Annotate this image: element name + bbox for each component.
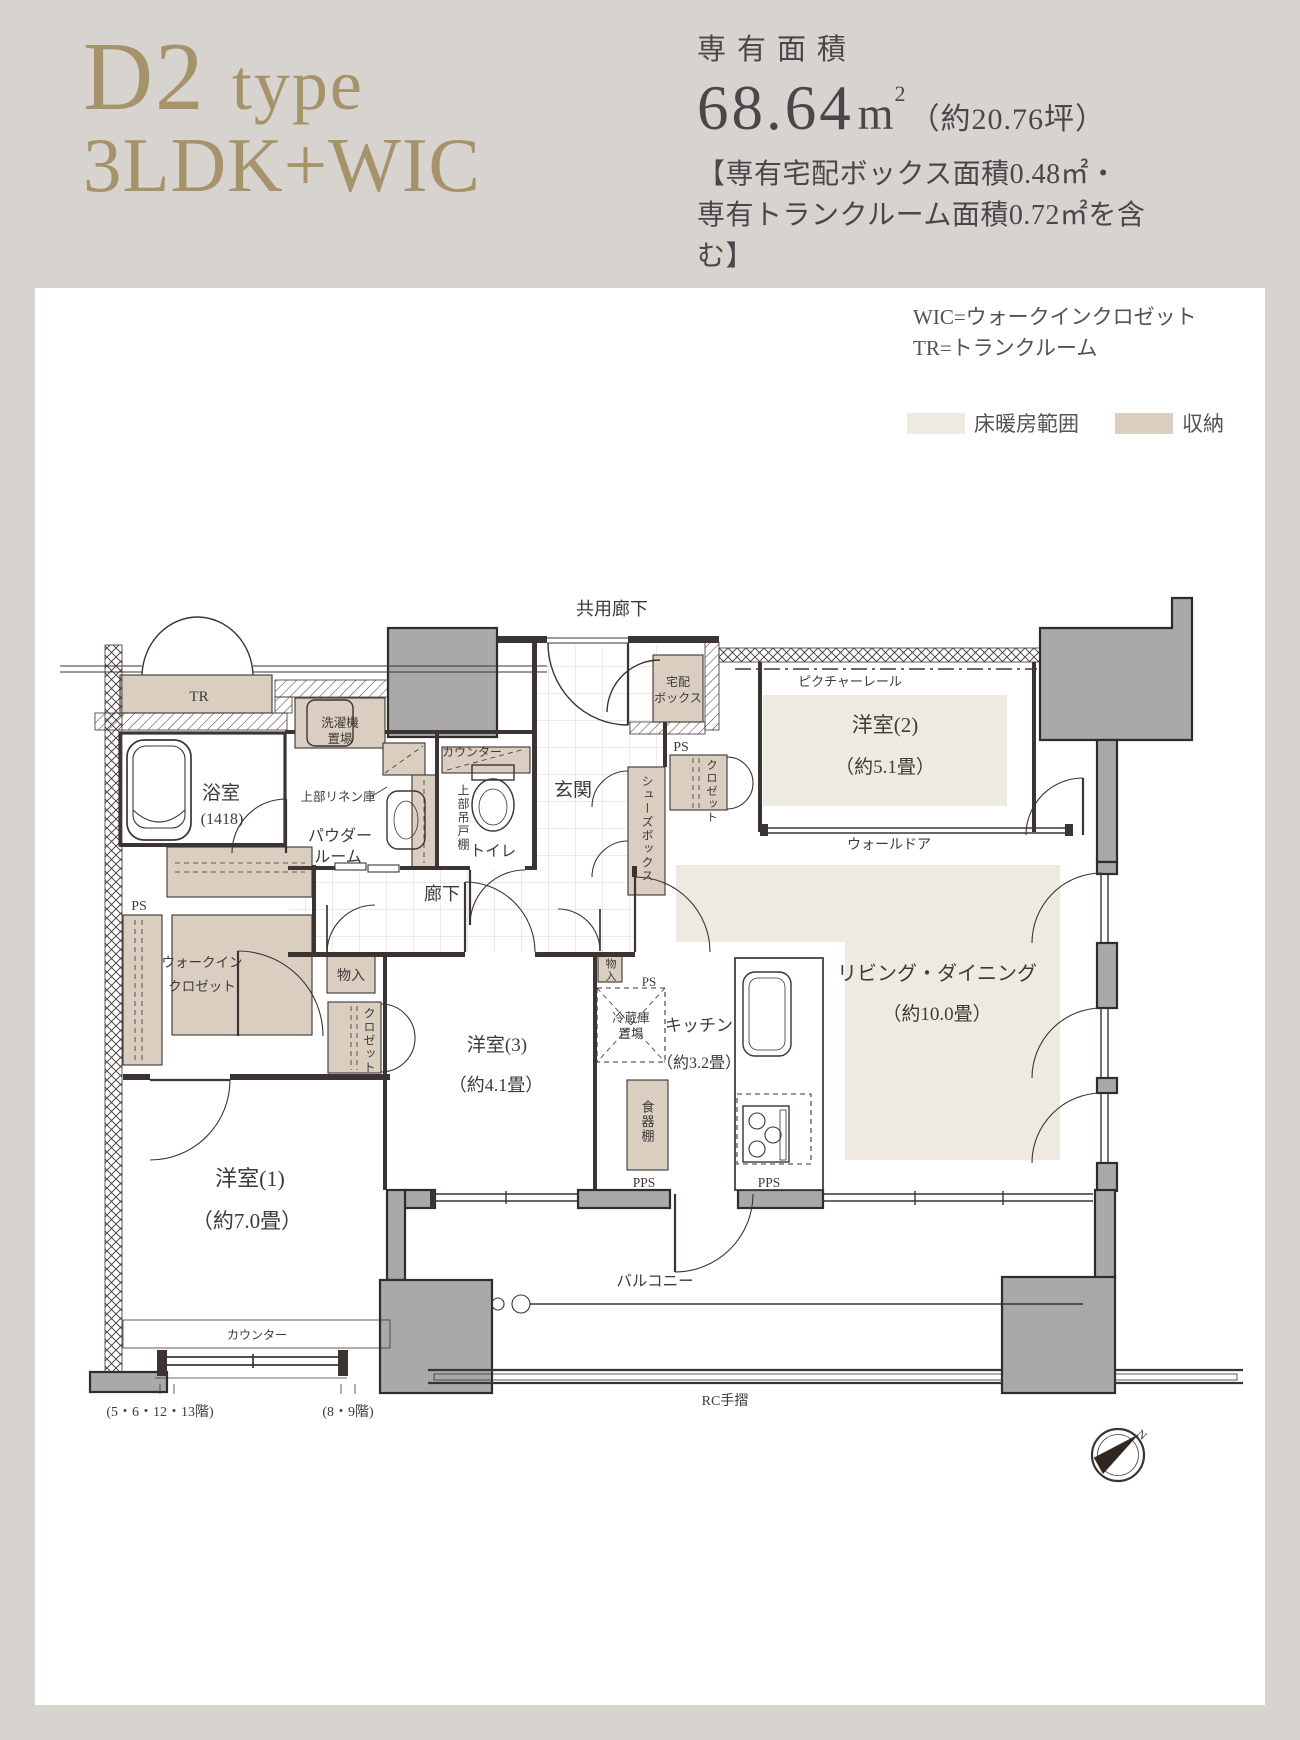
label-cupboard: 食器棚: [640, 1099, 655, 1143]
label-floors-b: (8・9階): [322, 1404, 374, 1420]
label-ps-center: PS: [642, 974, 656, 989]
ld-south-window: [823, 1191, 1093, 1205]
label-ps-top: PS: [673, 740, 689, 755]
unit-type-code: D2: [83, 23, 206, 130]
bathtub: [127, 740, 191, 840]
label-compass-north: N: [1134, 1427, 1150, 1444]
area-unit: m2: [858, 88, 906, 139]
label-bedroom1: 洋室(1): [215, 1166, 285, 1191]
label-wall-door: ウォールドア: [847, 837, 931, 853]
label-powder-2: ルーム: [314, 849, 362, 866]
label-toilet: トイレ: [470, 843, 517, 860]
area-tsubo: （約20.76坪）: [910, 103, 1107, 136]
fridge-space: [597, 988, 665, 1062]
unit-type-title: D2 type 3LDK+WIC: [83, 28, 481, 204]
column-balcony-left: [380, 1280, 492, 1393]
label-bedroom3: 洋室(3): [467, 1034, 527, 1056]
label-shoe-box: シューズボックス: [640, 775, 654, 883]
label-ps-left: PS: [131, 899, 147, 914]
wall-door-track: [763, 828, 1070, 833]
label-delivery-box-1: 宅配: [666, 674, 690, 689]
unit-type-row: D2 type: [83, 28, 481, 125]
label-counter-bottom: カウンター: [227, 1328, 287, 1342]
label-washer-1: 洗濯機: [321, 715, 359, 730]
label-closet-top: クロゼット: [705, 759, 718, 824]
bedroom1-window: [167, 1354, 338, 1368]
closet2-doors: [727, 757, 753, 809]
label-fridge-1: 冷蔵庫: [612, 1011, 650, 1025]
label-pps-left: PPS: [633, 1175, 656, 1190]
area-info: 専有面積 68.64 m2 （約20.76坪） 【専有宅配ボックス面積0.48㎡…: [697, 26, 1177, 277]
label-bedroom2-size: （約5.1畳）: [835, 756, 935, 778]
toilet-bowl: [472, 779, 514, 831]
area-note-line2: 専有トランクルーム面積0.72㎡を含む】: [697, 195, 1177, 277]
mirror-cabinet-fill: [383, 743, 425, 775]
label-common-corridor: 共用廊下: [576, 599, 648, 619]
trunk-room-doors: [142, 617, 253, 675]
label-upper-linen: 上部リネン庫: [300, 789, 375, 804]
label-kitchen: キッチン: [665, 1016, 733, 1035]
exterior-wall-top: [719, 648, 1040, 662]
wic-main-fill: [172, 915, 312, 1035]
unit-type-suffix: type: [232, 45, 364, 125]
label-pps-right: PPS: [758, 1175, 781, 1190]
column-entrance: [388, 628, 497, 737]
floorplan-card: WIC=ウォークインクロゼット TR=トランクルーム 床暖房範囲 収納: [35, 288, 1265, 1705]
label-toilet-counter: カウンター: [442, 745, 502, 759]
area-note-line1: 【専有宅配ボックス面積0.48㎡・: [697, 154, 1177, 195]
area-note: 【専有宅配ボックス面積0.48㎡・ 専有トランクルーム面積0.72㎡を含む】: [697, 154, 1177, 277]
label-bath: 浴室: [202, 782, 240, 804]
unit-layout: 3LDK+WIC: [83, 127, 481, 204]
column-bottom-left: [90, 1372, 167, 1392]
rc-parapet: [428, 1370, 1243, 1383]
closet2-fill: [670, 755, 727, 810]
label-floors-a: (5・6・12・13階): [106, 1404, 214, 1420]
label-wic-2: クロゼット: [168, 979, 236, 994]
label-trunk-room: TR: [189, 689, 208, 705]
label-bath-size: (1418): [201, 811, 244, 828]
floor-plan: 共用廊下 TR 宅配 ボックス ピクチャーレール PS クロゼット 洋室(2) …: [35, 288, 1265, 1705]
label-kitchen-size: （約3.2畳）: [657, 1054, 741, 1072]
area-value: 68.64: [697, 73, 854, 143]
area-label: 専有面積: [697, 26, 1177, 68]
label-living-dining: リビング・ダイニング: [837, 962, 1037, 985]
floor-heating-bedroom2: [763, 695, 1007, 806]
ps-left-fill: [123, 915, 162, 1065]
label-delivery-box-2: ボックス: [654, 691, 702, 705]
bedroom1-door: [150, 1080, 230, 1160]
bedroom3-window: [435, 1191, 578, 1204]
label-wic-1: ウォークイン: [162, 955, 243, 970]
column-top-right: [1040, 598, 1192, 740]
label-hallway: 廊下: [424, 884, 460, 904]
label-washer-2: 置場: [327, 732, 352, 746]
label-fridge-2: 置場: [618, 1027, 643, 1041]
label-storage-center: 物入: [604, 957, 617, 983]
kitchen-sink: [743, 972, 791, 1056]
floor-heating-living-dining: [676, 865, 1060, 1160]
label-picture-rail: ピクチャーレール: [798, 674, 902, 689]
area-main: 68.64 m2 （約20.76坪）: [697, 72, 1177, 145]
label-living-dining-size: （約10.0畳）: [882, 1003, 991, 1025]
label-bedroom2: 洋室(2): [852, 713, 919, 737]
label-rc-rail: RC手摺: [702, 1393, 749, 1409]
label-bedroom3-size: （約4.1畳）: [449, 1075, 544, 1095]
label-closet-left: クロゼット: [362, 1007, 376, 1075]
label-entrance: 玄関: [554, 779, 592, 801]
label-balcony: バルコニー: [616, 1273, 693, 1290]
hallway-tile-floor: [290, 870, 635, 952]
label-storage-left: 物入: [337, 968, 365, 984]
column-balcony-right: [1002, 1277, 1115, 1393]
label-powder-1: パウダー: [308, 827, 372, 845]
label-upper-cabinet: 上部吊戸棚: [456, 784, 470, 852]
label-bedroom1-size: （約7.0畳）: [192, 1209, 302, 1233]
